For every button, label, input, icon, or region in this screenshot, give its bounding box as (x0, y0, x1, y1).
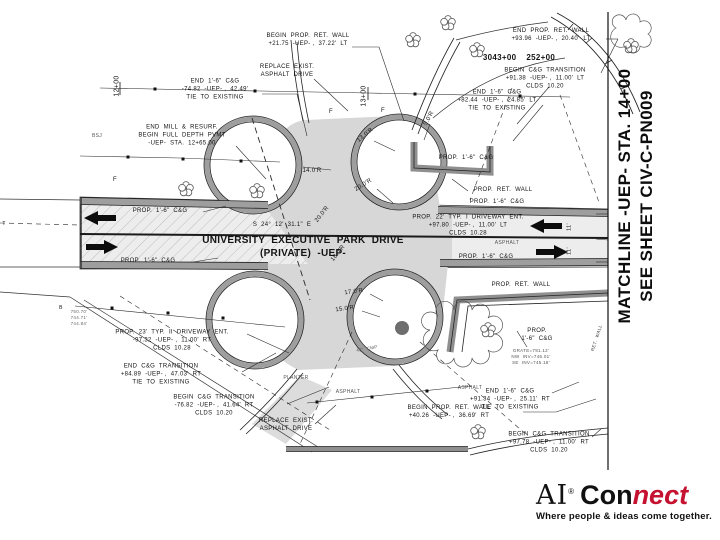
matchline-line1: MATCHLINE -UEP- STA. 14+00 (614, 69, 636, 324)
plan-label-bearing: S 24° 12' 31.1" E (253, 222, 311, 230)
plan-label-driveway-ent-w: PROP. 23' TYP. II DRIVEWAY ENT. -97.32 -… (115, 329, 228, 352)
logo-wordmark: AI®Connect (536, 482, 712, 509)
plan-label-begin-cg-trans-ne: BEGIN C&G TRANSITION +91.38 -UEP- , 11.0… (504, 67, 585, 90)
plan-label-ret-wall-rotated: RET. WALL (590, 324, 604, 352)
logo-tagline: Where people & ideas come together. (536, 511, 712, 522)
plan-label-prop-cg-e2: PROP. 1'-6" C&G (459, 254, 514, 262)
plan-label-radius-20b: 20.0'R (314, 205, 332, 225)
plan-label-stations-bold: 3043+00 252+00 (483, 53, 555, 63)
plan-label-end-ret-wall-n: END PROP. RET. WALL +93.96 -UEP- , 20.40… (511, 28, 590, 44)
plan-label-prop-cg-e: PROP. 1'-6" C&G (470, 199, 525, 207)
plan-label-bsj: BSJ (92, 133, 102, 140)
plan-label-radius-17: 17.0'R (344, 288, 364, 298)
plan-label-prop-cg-nw: PROP. 1'-6" C&G (133, 208, 188, 216)
plan-label-begin-ret-wall-n: BEGIN PROP. RET. WALL +21.75 -UEP- , 37.… (267, 33, 350, 49)
plan-label-radius-15: 15.0'R (335, 305, 355, 315)
plan-label-radius-13: 13.0'R (356, 127, 376, 145)
logo-brand-serif: AI (536, 480, 568, 511)
plan-label-end-mill-resurf: END MILL & RESURF. BEGIN FULL DEPTH PVMT… (138, 124, 225, 147)
plan-label-driveway-ent-e: PROP. 22' TYP. I DRIVEWAY ENT. +97.80 -U… (412, 214, 523, 237)
plan-label-asphalt-e: ASPHALT (495, 240, 520, 247)
plan-label-elev-stack: 750.70' 744.71' 744.84' (71, 309, 88, 327)
plan-label-b-left: B (59, 305, 63, 312)
plan-label-asphalt-s: ASPHALT (336, 389, 361, 396)
plan-label-begin-ret-wall-s: BEGIN PROP. RET. WALL +40.26 -UEP- , 36.… (408, 405, 491, 421)
matchline-label: MATCHLINE -UEP- STA. 14+00 SEE SHEET CIV… (614, 69, 658, 324)
plan-label-planter: PLANTER (283, 375, 308, 382)
plan-label-radius-14: 14.0'R (303, 168, 322, 176)
plan-label-prop-ret-wall-se: PROP. RET. WALL (492, 282, 551, 290)
plan-label-replace-exist-n: REPLACE EXIST. ASPHALT DRIVE (260, 64, 314, 80)
plan-label-road-name: UNIVERSITY EXECUTIVE PARK DRIVE (PRIVATE… (202, 234, 404, 260)
plan-label-prop-cg-se: PROP. 1'-6" C&G (521, 328, 552, 344)
plan-label-radius-20a: 20.0'R (354, 178, 374, 195)
logo-word-red: nect (633, 480, 689, 510)
plan-label-prop-cg-sw: PROP. 1'-6" C&G (121, 258, 176, 266)
plan-label-end-cg-trans-sw: END C&G TRANSITION +84.89 -UEP- , 47.03'… (121, 363, 201, 386)
plan-label-end-cg-nw: END 1'-6" C&G -74.82 -UEP- , 42.49' TIE … (182, 78, 248, 101)
plan-label-begin-cg-trans-se: BEGIN C&G TRANSITION +97.78 -UEP- , 11.0… (508, 431, 589, 454)
plan-label-prop-cg-ne: PROP. 1'-6" C&G (439, 155, 494, 163)
logo-word-black: Con (580, 480, 632, 510)
plan-label-station-13: 13+00 (359, 85, 368, 106)
logo-trademark-icon: ® (568, 487, 574, 496)
plan-label-fence-f3: F (381, 108, 385, 116)
plan-label-prop-ret-wall-e: PROP. RET. WALL (474, 187, 533, 195)
plan-label-begin-cg-trans-sw: BEGIN C&G TRANSITION -76.82 -UEP- , 41.6… (173, 394, 254, 417)
annotation-layer: BEGIN PROP. RET. WALL +21.75 -UEP- , 37.… (0, 0, 720, 540)
plan-label-lane-11-n: 11' (566, 223, 573, 231)
matchline-line2: SEE SHEET CIV-C-PN009 (636, 69, 658, 324)
plan-label-end-cg-ne: END 1'-6" C&G +82.44 -UEP- , 24.85' LT T… (457, 89, 536, 112)
plan-label-lane-11-s: 11' (566, 247, 573, 255)
plan-label-replace-exist-s: REPLACE EXIST. ASPHALT DRIVE (259, 418, 313, 434)
logo: AI®Connect Where people & ideas come tog… (536, 482, 712, 522)
plan-label-t-left: T (2, 221, 5, 228)
plan-label-fence-f1: F (113, 177, 117, 185)
plan-label-cmp-pipe: 48" CMP (356, 344, 378, 353)
civil-plan-sheet: BEGIN PROP. RET. WALL +21.75 -UEP- , 37.… (0, 0, 720, 540)
plan-label-station-12: 12+00 (112, 75, 121, 96)
plan-label-radius-5: 5.0'R (423, 110, 437, 127)
plan-label-fence-f2: F (329, 109, 333, 117)
plan-label-grate-inverts: GRATE=791.12' NW INV=746.01' SE INV=745.… (511, 348, 550, 366)
